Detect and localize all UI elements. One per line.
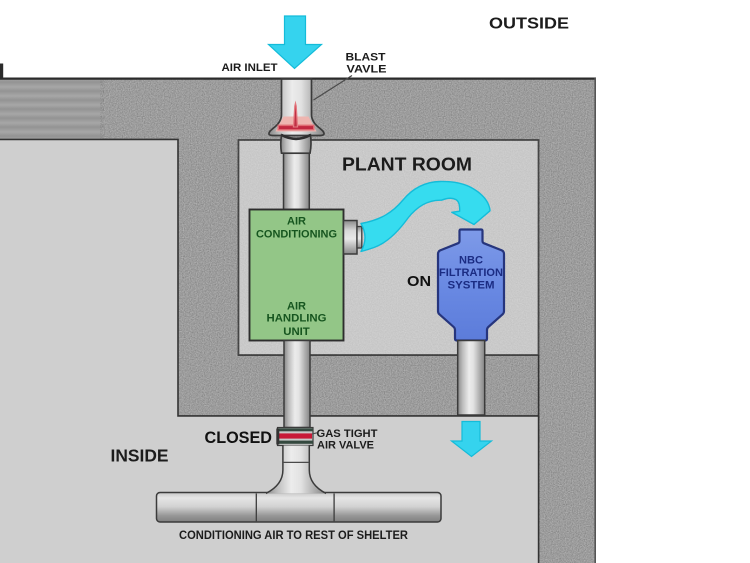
svg-text:GAS TIGHT: GAS TIGHT xyxy=(317,428,379,440)
svg-text:VAVLE: VAVLE xyxy=(347,64,388,76)
svg-text:NBC: NBC xyxy=(459,255,483,267)
svg-text:CONDITIONING AIR TO REST OF SH: CONDITIONING AIR TO REST OF SHELTER xyxy=(179,528,408,542)
svg-text:HANDLING: HANDLING xyxy=(267,312,327,324)
svg-text:INSIDE: INSIDE xyxy=(111,446,169,466)
svg-text:AIR: AIR xyxy=(287,300,306,312)
svg-text:AIR INLET: AIR INLET xyxy=(222,62,278,74)
svg-text:ON: ON xyxy=(407,273,431,290)
svg-text:SYSTEM: SYSTEM xyxy=(448,279,495,291)
svg-text:CLOSED: CLOSED xyxy=(205,429,273,447)
svg-text:AIR VALVE: AIR VALVE xyxy=(317,440,374,452)
svg-text:UNIT: UNIT xyxy=(283,326,310,338)
svg-text:AIR: AIR xyxy=(287,216,306,228)
svg-text:BLAST: BLAST xyxy=(346,52,386,64)
svg-text:CONDITIONING: CONDITIONING xyxy=(256,228,337,240)
svg-text:FILTRATION: FILTRATION xyxy=(439,267,503,279)
svg-text:OUTSIDE: OUTSIDE xyxy=(489,15,569,32)
svg-text:PLANT ROOM: PLANT ROOM xyxy=(342,154,472,175)
